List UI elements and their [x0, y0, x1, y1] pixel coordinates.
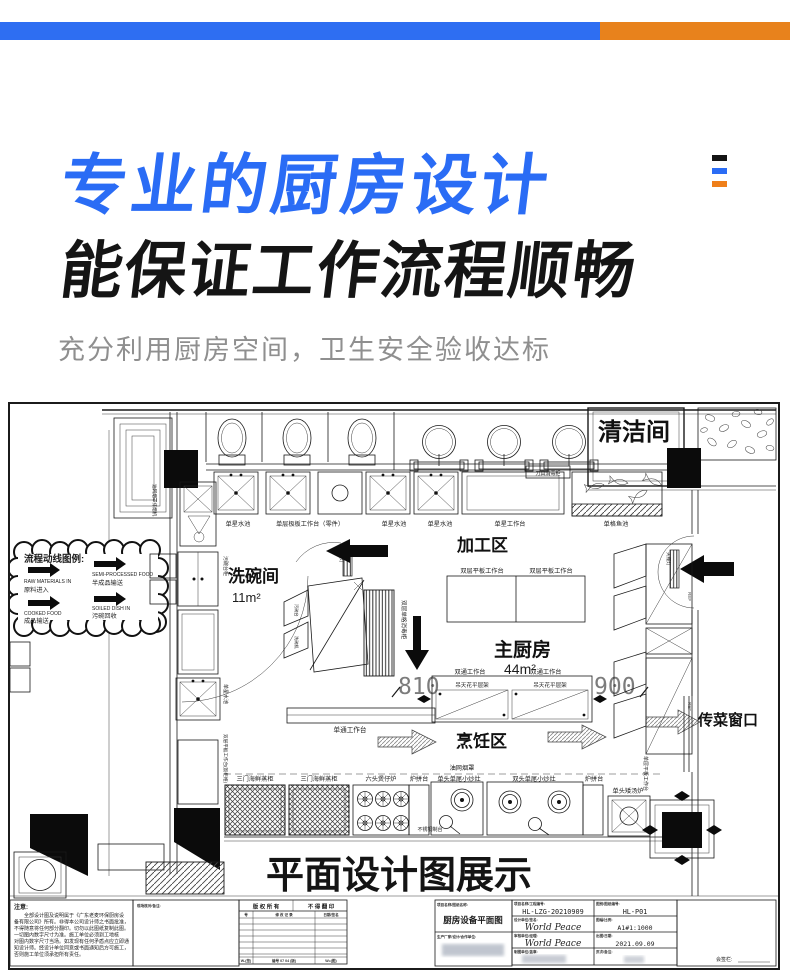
- top-bar-blue-segment: [0, 22, 600, 40]
- steamer1-label: 三门海鲜蒸柜: [236, 775, 273, 783]
- pebble-area: [698, 408, 776, 460]
- top-bar-orange-segment: [600, 22, 790, 40]
- flow-arrows: [378, 710, 700, 754]
- revision-footer-col: 编号 07 04 (版): [272, 958, 297, 963]
- censored-stamp: [522, 955, 566, 963]
- design-co: World Peace: [525, 923, 582, 933]
- notes-line: 不得随意将任何部分翻印。切勿以此图纸复制此图。: [14, 925, 129, 932]
- remarks-box: 现场核对/备注:: [133, 900, 239, 966]
- page-subtitle-headline: 能保证工作流程顺畅: [56, 220, 643, 310]
- fish-glyphs: [584, 473, 663, 503]
- double-pass-table2-label: 双通工作台: [531, 668, 562, 676]
- maker-header: 生产厂家/设计/合作单位:: [437, 934, 476, 939]
- draw-header: 制图单位/盖章:: [514, 949, 538, 954]
- revision-sub-col: 修 改 记 录: [274, 912, 293, 917]
- dim-810: 810: [398, 674, 440, 700]
- sink3-label: 单星水池: [428, 520, 453, 528]
- processing-area-label: 加工区: [456, 536, 508, 555]
- floor-plan-svg: 清洁间 刀具消毒柜: [10, 404, 778, 968]
- sterilizer-label: 双层单格消毒柜: [400, 600, 408, 640]
- revision-sub-col: 号: [244, 912, 248, 917]
- legend-raw-cn: 原料进入: [24, 586, 49, 594]
- project-header: 项目名称/工程编号:: [514, 901, 545, 906]
- audit-header: 审核单位/经理:: [514, 933, 538, 938]
- main-kitchen-center: 双层平板工作台 双层平板工作台 主厨房 44m² 810 900 双通工作台 双…: [392, 567, 648, 751]
- revision-header-right: 不 得 翻 印: [308, 903, 335, 911]
- notes-line: 备有限公司》所有。非得本公司设计师之书面批准，: [14, 919, 129, 926]
- info-table: 项目名称/工程编号: HL-LZG-20210909 图别/图纸编号: HL-P…: [512, 900, 677, 965]
- left-table-label: 双层平板工作台(饭柜格): [222, 734, 229, 783]
- flap2-label: 洗碗机: [293, 636, 300, 649]
- claypot-stove-label: 六头煲仔炉: [366, 775, 397, 783]
- tri-bar-orange: [712, 181, 727, 187]
- dishwashing-room-label: 洗碗间: [228, 566, 279, 586]
- left-wall-equipment: 油网烟罩排烟机 污碗台柜 单星水池 双层平板工作台(饭柜格): [150, 482, 229, 804]
- steel-table-label: 不锈钢制台: [417, 826, 442, 833]
- revision-header-left: 版 权 所 有: [252, 903, 280, 911]
- side-flat-table-label: 单层平板工作台: [642, 756, 649, 791]
- ceiling-rack2-label: 吊天花平层架: [533, 681, 567, 689]
- soup-stove-label: 单头矮汤炉: [613, 787, 644, 795]
- hatched-wall: [146, 862, 224, 894]
- legend-raw-en: RAW MATERIALS IN: [24, 579, 72, 585]
- double-flat-table2-label: 双层平板工作台: [529, 567, 572, 575]
- date-value: 2021.09.09: [615, 940, 654, 948]
- revision-sub-col: 日期/签名: [323, 912, 339, 917]
- legend-soiled-cn: 污碗回收: [92, 612, 117, 620]
- floor-plan-drawing: 清洁间 刀具消毒柜: [8, 402, 780, 970]
- project-no: HL-LZG-20210909: [522, 908, 583, 916]
- notes-line: 否则施工单位须承担所有责任。: [14, 951, 84, 958]
- cooking-area-label: 烹饪区: [456, 731, 507, 751]
- ceiling-lamp2-label: 天棚灯: [665, 552, 672, 566]
- censored-company-name: [442, 944, 504, 956]
- knife-cabinet-label: 刀具消毒柜: [535, 470, 560, 477]
- page-header: 页次/备注:: [596, 949, 613, 954]
- date-header: 出图/日期:: [596, 933, 613, 938]
- legend-title: 流程动线图例:: [24, 553, 84, 565]
- plan-caption: 平面设计图展示: [266, 855, 532, 897]
- number-header: 图别/图纸编号:: [596, 901, 620, 906]
- double-flat-table1-label: 双层平板工作台: [460, 567, 503, 575]
- toilet-fixtures: [206, 412, 394, 470]
- revision-footer-col: W-(签): [241, 958, 252, 963]
- legend-soiled-en: SOILED DISH IN: [92, 606, 130, 612]
- legend-cooked-en: COOKED FOOD: [24, 611, 62, 617]
- main-kitchen-label: 主厨房: [494, 638, 551, 661]
- pass-window: 传菜窗口: [684, 696, 758, 772]
- steamer2-label: 三门海鲜蒸柜: [300, 775, 337, 783]
- legend-semi-en: SEMI-PROCESSED FOOD: [92, 572, 154, 578]
- stove-side1-label: 炉拼台: [410, 775, 429, 783]
- stove-side2-label: 炉拼台: [585, 775, 604, 783]
- notes-box: 注意: 全部设计图及说明属于《广东老麦环保厨房设 备有限公司》所有。非得本公司设…: [10, 900, 133, 966]
- censored-page: [624, 956, 644, 963]
- fish-tank-label: 单格鱼池: [604, 520, 629, 528]
- audit-co: World Peace: [525, 939, 582, 949]
- right-wall-equipment: REF REF 单层平板工作台: [614, 544, 692, 791]
- sink1-label: 单星水池: [226, 520, 251, 528]
- pass-window-label: 传菜窗口: [697, 711, 758, 729]
- hood-left-label: 油网烟罩排烟机: [151, 484, 158, 517]
- drawing-name-box: 项目名称/图纸名称: 厨房设备平面图 生产厂家/设计/合作单位:: [435, 900, 512, 966]
- notes-line: 知设计师。经设计单位同意或书面通知后方可施工，: [14, 945, 129, 952]
- tri-bar-black: [712, 155, 727, 161]
- revision-footer-col: W=(图): [325, 958, 337, 963]
- ceiling-rack1-label: 吊天花平层架: [455, 681, 489, 689]
- scale-header: 图幅/比例:: [596, 917, 613, 922]
- tri-bar-blue: [712, 168, 727, 174]
- bottom-right-column: [642, 791, 722, 865]
- top-accent-bar: [0, 22, 790, 40]
- notes-line: 全部设计图及说明属于《广东老麦环保厨房设: [14, 912, 124, 919]
- drawing-name-header: 项目名称/图纸名称:: [437, 902, 468, 907]
- page-title: 专业的厨房设计: [56, 132, 558, 228]
- page-tagline: 充分利用厨房空间，卫生安全验收达标: [58, 328, 551, 367]
- legend-cooked-cn: 成品输送: [24, 617, 50, 625]
- sign-box: 会签栏:: [677, 900, 776, 966]
- flow-legend: 流程动线图例: RAW MATERIALS IN 原料进入 SEMI-PROCE…: [10, 540, 168, 636]
- double-pass-table1-label: 双通工作台: [455, 668, 486, 676]
- worktable-single-label: 单星工作台: [495, 520, 526, 528]
- cook-line: 三门海鲜蒸柜 三门海鲜蒸柜 六头煲仔炉 炉拼台 单头单尾小炒灶 油网烟罩 双头单…: [224, 764, 662, 841]
- notes-line: 对图内数字尺寸当场。如发现有任何矛盾点应立即通: [14, 938, 129, 945]
- revision-table: 版 权 所 有 不 得 翻 印 号 修 改 记 录 日期/签名 W-(签) 编号…: [239, 900, 347, 964]
- remarks-header: 现场核对/备注:: [137, 903, 161, 908]
- ref2-label: REF: [687, 702, 692, 711]
- drawing-no: HL-P01: [623, 908, 648, 916]
- ref1-label: REF: [687, 592, 692, 601]
- sink-row: 刀具消毒柜 单星水池 单层极板工作台（零件） 单星水池 单星水池 单星工作台 单…: [214, 466, 663, 555]
- sink2-label: 单星水池: [382, 520, 407, 528]
- legend-semi-cn: 半成品输送: [92, 579, 124, 587]
- notes-title: 注意:: [14, 903, 28, 911]
- tri-bar-icon: [712, 155, 727, 194]
- cleaning-room-label: 清洁间: [598, 419, 670, 446]
- sign-header: 会签栏:: [716, 956, 732, 963]
- scale-value: A1#1:1000: [617, 924, 652, 932]
- dishwashing-area-label: 11m²: [232, 590, 261, 605]
- flap1-label: 污碗台: [293, 604, 300, 617]
- hood-label: 油网烟罩: [450, 764, 475, 772]
- single-pass-table-label: 单通工作台: [334, 725, 367, 734]
- drawing-name: 厨房设备平面图: [443, 915, 503, 925]
- notes-line: 一切图内数字尺寸为准。施工单位必须到工地核: [14, 932, 119, 939]
- design-header: 设计单位/签名:: [514, 917, 538, 922]
- worktable-parts-label: 单层极板工作台（零件）: [276, 520, 344, 528]
